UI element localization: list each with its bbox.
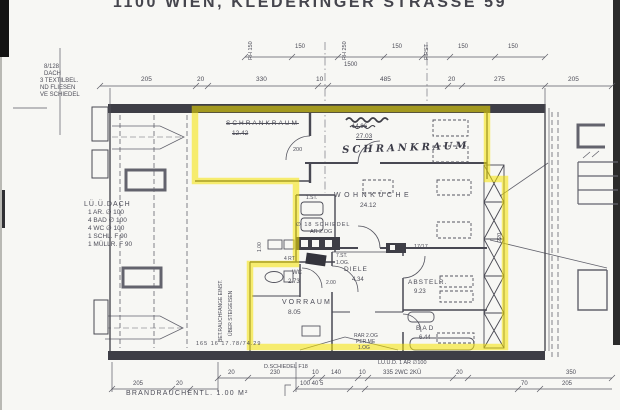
- room-diele-area: 4.34: [352, 277, 364, 283]
- room-wohnkueche-area: 24.12: [360, 203, 376, 210]
- dim-top-10: 10: [316, 77, 323, 84]
- room-bad-label: BAD: [416, 326, 435, 333]
- note-roof-line3: 3 TEXTILBEL.: [40, 78, 78, 84]
- note-steigeisen: ÜBER STEIGEISEN: [229, 291, 234, 336]
- stair-1st: 1.ST.: [306, 196, 317, 201]
- note-vent-line2: 1 AR. ∅ 100: [88, 210, 124, 217]
- note-1og: 1.OG: [358, 346, 370, 351]
- door-width-200b: 2.00: [326, 281, 336, 286]
- dim-1500: 1500: [344, 62, 357, 68]
- note-vent-line4: 4 WC ∅ 100: [88, 226, 124, 233]
- room-schrankraum1-label: SCHRANKRAUM: [226, 121, 299, 128]
- dim-top-330: 330: [256, 77, 267, 84]
- dim-slab: 165 16 17.78/74.29: [196, 342, 261, 348]
- door-width-200: 200: [293, 148, 302, 154]
- room-wc-label: WC: [292, 270, 302, 276]
- room-schrankraum2-label: SCHRANKRAUM: [342, 142, 470, 157]
- note-roof-line5: VE SCHIEDEL: [40, 92, 80, 98]
- dim-bot-230: 230: [270, 370, 280, 376]
- dim-bot-20a: 20: [228, 370, 235, 376]
- note-vent-line3: 4 BAD ∅ 100: [88, 218, 127, 225]
- floor-plan-page: 1100 WIEN, KLEDERINGER STRASSE 59 8/128D…: [0, 0, 620, 410]
- room-bad-area: 6.44: [419, 335, 431, 341]
- stair-7st: 7.ST.: [336, 254, 347, 259]
- note-vent-line1: LÜ.Ü.DACH: [84, 201, 131, 208]
- dim-top-485: 485: [380, 77, 391, 84]
- labels-overlay: 8/128DACH3 TEXTILBEL.ND FLIESENVE SCHIED…: [0, 0, 620, 410]
- note-roof-line1: 8/128: [44, 64, 59, 70]
- dim-bot-335: 335 2WC 2KÜ: [383, 370, 421, 376]
- note-4rt: 4 RT: [284, 257, 295, 262]
- dim-top-20b: 20: [448, 77, 455, 84]
- dim-150-c: 150: [458, 44, 468, 50]
- dim-bot-205b: 205: [133, 381, 143, 387]
- dim-bot-350: 350: [566, 370, 576, 376]
- room-wc-area: 2.73: [288, 279, 300, 285]
- dim-first: FIRST: [425, 44, 431, 60]
- room-schrankraum2-area: 27.03: [356, 134, 372, 141]
- note-vent-line6: 1 MÜLLR. F 90: [88, 242, 132, 249]
- dim-rh150: RH 150: [249, 41, 255, 60]
- note-rauchfang: BET.RAUCHFANGE EINST.: [219, 280, 224, 342]
- dim-150-b: 150: [392, 44, 402, 50]
- dim-top-205b: 205: [568, 77, 579, 84]
- room-abstellraum-area: 9.23: [414, 289, 426, 295]
- dim-bot-140: 140: [331, 370, 341, 376]
- dim-bot-70: 70: [521, 381, 528, 387]
- dim-bot-10b: 10: [359, 370, 366, 376]
- dim-rh250: RH 250: [343, 41, 349, 60]
- room-wohnkueche-label: WOHNKÜCHE: [334, 192, 412, 199]
- note-ar-2og: AR 2.OG: [310, 230, 332, 236]
- room-diele-label: DIELE: [344, 267, 368, 274]
- dim-220-vert: 220: [498, 233, 504, 242]
- room-vorraum-area: 8.05: [288, 310, 301, 317]
- note-roof-line4: ND FLIESEN: [40, 85, 75, 91]
- note-vent-line5: 1 SCHL. F 90: [88, 234, 127, 241]
- dim-bot-205a: 205: [562, 381, 572, 387]
- note-brandrauch: BRANDRAUCHENTL. 1.00 M²: [126, 390, 249, 397]
- dim-150-a: 150: [295, 44, 305, 50]
- note-roof-line2: DACH: [44, 71, 61, 77]
- dim-100-vert: 1.00: [258, 242, 263, 252]
- room-vorraum-label: VORRAUM: [282, 299, 332, 306]
- dim-top-275: 275: [494, 77, 505, 84]
- dim-bot-10a: 10: [312, 370, 319, 376]
- dim-bot-20c: 20: [176, 381, 183, 387]
- room-schrankraum2-old-area: 14.96: [352, 124, 367, 130]
- dim-bot-100-40-5: 100 40 5: [300, 381, 323, 387]
- dim-top-205a: 205: [141, 77, 152, 84]
- dim-17-17: 17/17: [414, 245, 428, 251]
- dim-150-d: 150: [508, 44, 518, 50]
- note-vent-bottom: LÜ.Ü.D. 1 AR ∅100: [378, 361, 427, 367]
- dim-top-20a: 20: [197, 77, 204, 84]
- dim-bot-20b: 20: [456, 370, 463, 376]
- room-abstellraum-label: ABSTELR.: [408, 280, 447, 287]
- room-schrankraum1-area: 12.42: [232, 131, 248, 138]
- note-schiedel-18: ∅ 18 SCHIEDEL: [296, 223, 350, 229]
